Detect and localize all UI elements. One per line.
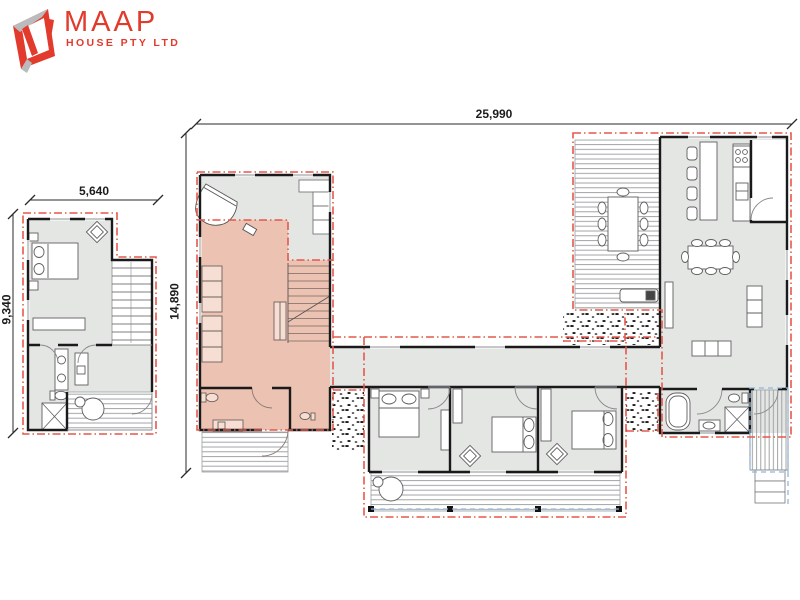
floor-plan-page: MAAP HOUSE PTY LTD 25,990 5,640 9,340 14… bbox=[0, 0, 800, 600]
pillow-icon bbox=[603, 434, 613, 447]
bedside-table-icon bbox=[29, 281, 38, 290]
bathtub-icon bbox=[666, 393, 690, 430]
toilet-icon bbox=[201, 393, 218, 402]
steps-icon bbox=[755, 470, 785, 503]
pillow-icon bbox=[382, 394, 396, 404]
basin-icon bbox=[699, 420, 720, 431]
shelf-icon bbox=[33, 318, 85, 330]
chair-icon bbox=[373, 477, 383, 487]
deck-boards-icon bbox=[202, 432, 288, 472]
bed-icon bbox=[379, 391, 419, 437]
pillow-icon bbox=[34, 247, 44, 258]
bbq-icon bbox=[620, 289, 658, 302]
cooktop-icon bbox=[733, 146, 750, 167]
chair-icon bbox=[75, 397, 85, 407]
floor-plan-drawing bbox=[0, 0, 800, 600]
pillow-icon bbox=[402, 394, 416, 404]
bedside-table-icon bbox=[421, 389, 429, 398]
bedside-table-icon bbox=[371, 389, 379, 398]
bed-icon bbox=[32, 243, 78, 279]
sink-icon bbox=[736, 183, 748, 200]
sideboard-icon bbox=[665, 282, 673, 328]
wardrobe-icon bbox=[441, 410, 450, 450]
pillow-icon bbox=[524, 436, 534, 449]
wardrobe-icon bbox=[541, 389, 551, 441]
kitchen-island-icon bbox=[700, 142, 717, 220]
sofa-icon bbox=[747, 286, 762, 327]
pillow-icon bbox=[34, 264, 44, 275]
bed-icon bbox=[572, 411, 616, 449]
sofa-icon bbox=[692, 341, 731, 356]
bedside-table-icon bbox=[29, 233, 38, 241]
wardrobe-icon bbox=[453, 389, 462, 423]
basin-icon bbox=[300, 413, 315, 421]
bed-icon bbox=[492, 417, 536, 452]
shower-icon bbox=[42, 403, 67, 430]
deck-boards-icon bbox=[750, 390, 788, 470]
pillow-icon bbox=[524, 419, 534, 432]
deck-boards-icon bbox=[371, 473, 620, 511]
toilet-icon bbox=[50, 391, 67, 400]
shower-icon bbox=[725, 407, 749, 432]
pillow-icon bbox=[603, 413, 613, 426]
